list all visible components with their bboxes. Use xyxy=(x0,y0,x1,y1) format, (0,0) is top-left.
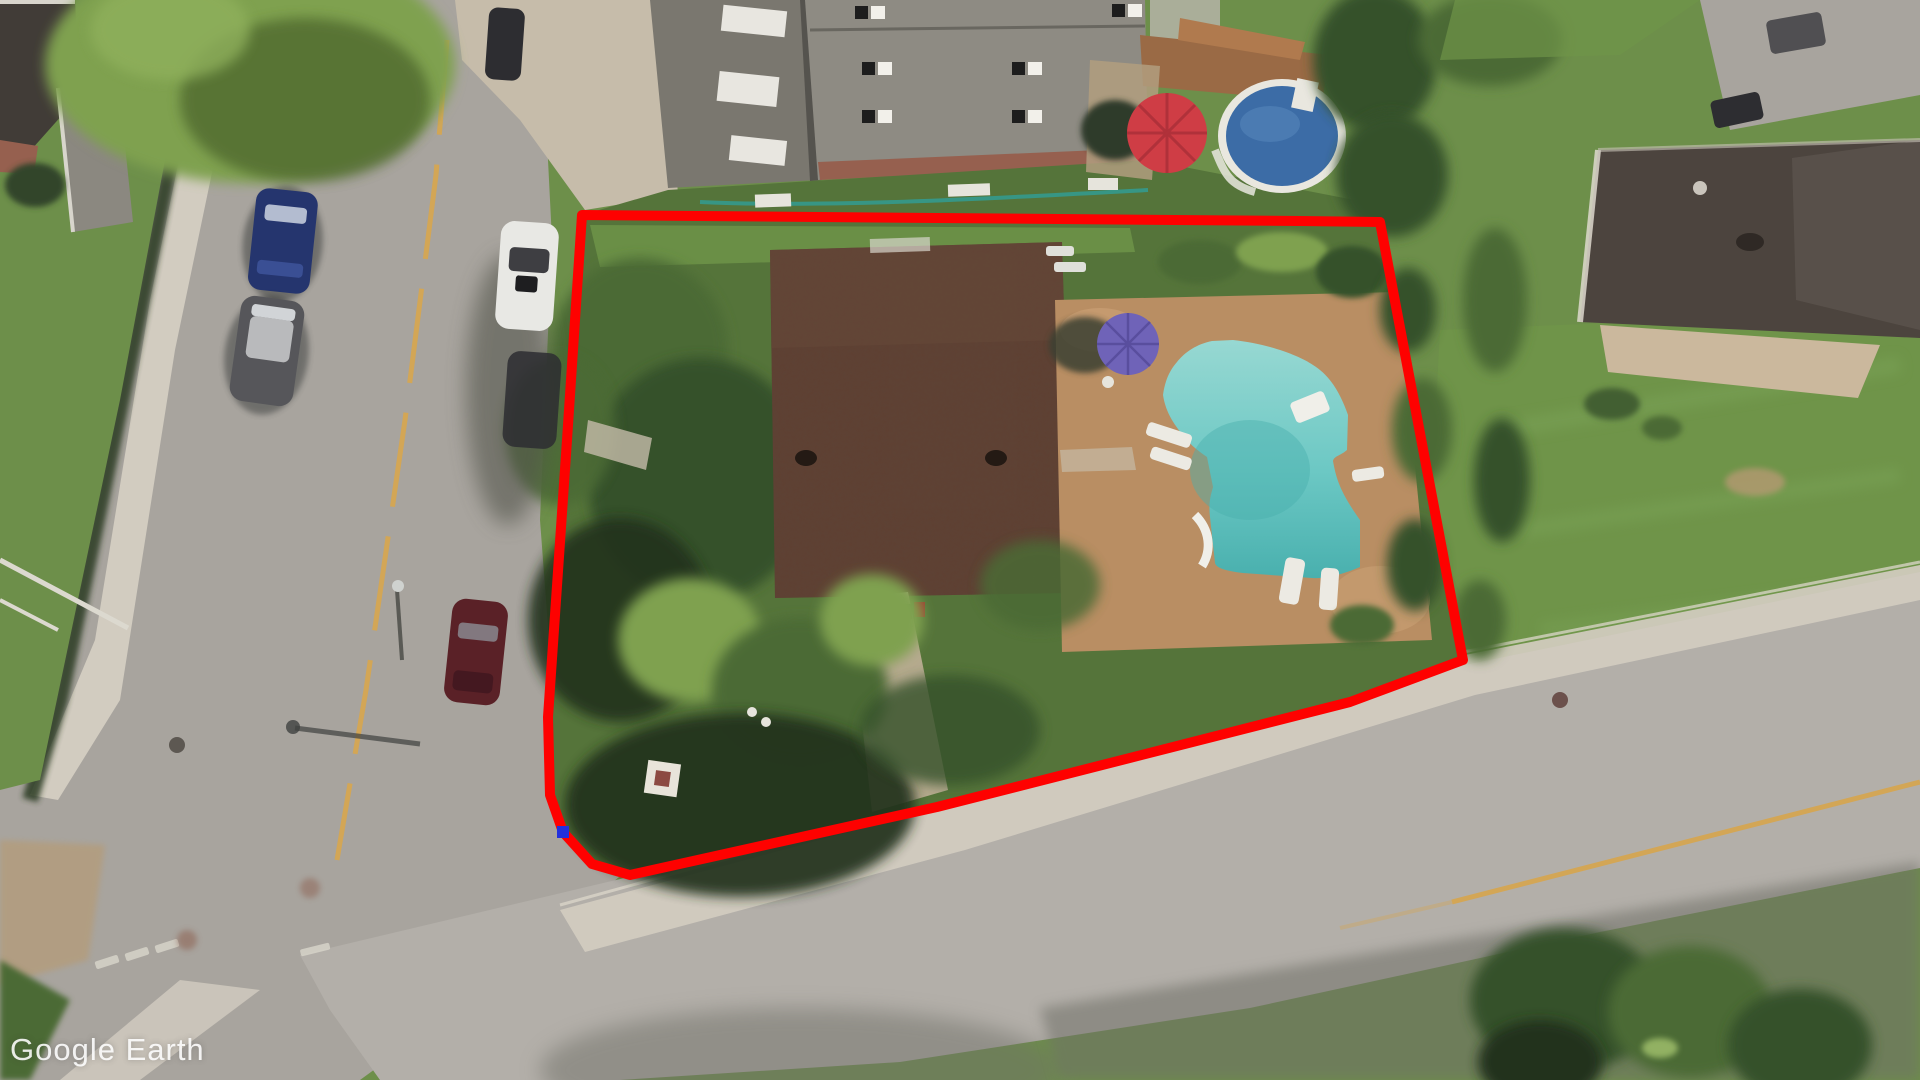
pool-area xyxy=(1046,246,1432,652)
parked-car-maroon xyxy=(443,597,510,706)
chimney-2 xyxy=(985,450,1007,466)
parked-car-dark-top xyxy=(484,7,525,81)
map-canvas[interactable] xyxy=(0,0,1920,1080)
sandbox xyxy=(644,760,681,797)
parked-car-shadowed xyxy=(502,350,563,450)
chimney xyxy=(795,450,817,466)
google-earth-watermark: Google Earth xyxy=(10,1032,205,1068)
pool-walkway xyxy=(1060,447,1136,472)
manhole xyxy=(169,737,185,753)
google-earth-viewport[interactable]: Google Earth xyxy=(0,0,1920,1080)
vertex-marker[interactable] xyxy=(557,826,569,838)
manhole-2 xyxy=(1552,692,1568,708)
parked-car-white xyxy=(494,220,559,332)
